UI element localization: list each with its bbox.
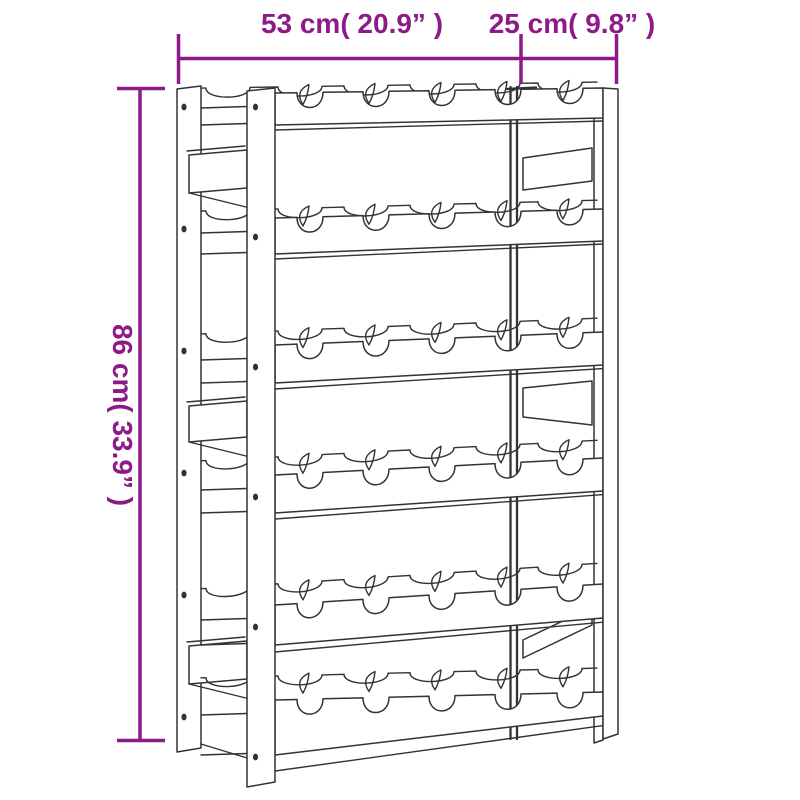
side-rail-line xyxy=(201,512,247,514)
shelf-front-rail-row-6 xyxy=(275,692,603,755)
front-right-post xyxy=(603,88,618,739)
bottle-cradle-rim xyxy=(300,206,309,226)
side-rail-line xyxy=(201,124,247,126)
back-right-post xyxy=(511,87,518,739)
bottle-cradle-rim xyxy=(432,83,441,103)
bottle-cradle-rim xyxy=(300,453,309,473)
bottle-cradle-rim xyxy=(560,317,569,337)
screw-dot xyxy=(253,364,258,371)
bottle-cradle-rim xyxy=(498,320,507,340)
bottle-cradle-rim xyxy=(300,328,309,348)
screw-dot xyxy=(181,104,186,111)
left-brace-bottom xyxy=(189,641,247,684)
bottle-cradle-rim xyxy=(560,563,569,583)
bottle-cradle-rim xyxy=(498,201,507,221)
bottle-cradle-rim xyxy=(300,580,309,600)
side-rail-line xyxy=(201,619,247,621)
side-rail-line xyxy=(201,489,247,491)
right-brace-middle xyxy=(523,381,592,425)
bottle-cradle-rim xyxy=(432,202,441,222)
bottle-cradle-rim xyxy=(498,81,507,101)
screw-dot xyxy=(253,104,258,111)
side-rail-line xyxy=(201,107,247,109)
side-rail-line xyxy=(201,253,247,255)
left-brace-middle xyxy=(189,401,247,442)
screw-dot xyxy=(181,714,186,721)
bottle-cradle-rim xyxy=(300,85,309,105)
side-rail-line xyxy=(201,232,247,234)
front-left-post xyxy=(247,88,275,787)
bottle-cradle-rim xyxy=(300,673,309,693)
left-brace-top xyxy=(189,150,247,193)
bottle-cradle-rim xyxy=(560,81,569,101)
side-rail-line xyxy=(201,754,247,756)
screw-dot xyxy=(253,494,258,501)
bottle-cradle-rim xyxy=(366,450,375,470)
shelf-front-rail-row-2 xyxy=(275,209,603,254)
bottle-cradle-rim xyxy=(366,325,375,345)
rack-back-layer xyxy=(177,86,603,752)
side-rail-line xyxy=(201,382,247,384)
product-dimension-diagram: 53 cm( 20.9” ) 25 cm( 9.8” ) 86 cm( 33.9… xyxy=(0,0,800,800)
bottle-cradle-rim xyxy=(498,443,507,463)
bottle-cradle-rim xyxy=(366,204,375,224)
bottle-cradle-rim xyxy=(432,670,441,690)
bottle-cradle-rim xyxy=(498,567,507,587)
screw-dot xyxy=(253,624,258,631)
bottle-cradle-rim xyxy=(366,84,375,104)
screw-dot xyxy=(253,234,258,241)
screw-dot xyxy=(253,754,258,761)
depth-dimension-label: 25 cm( 9.8” ) xyxy=(489,8,656,39)
bottle-cradle-rim xyxy=(498,668,507,688)
bottle-cradle-rim xyxy=(432,571,441,591)
bottle-cradle-rim xyxy=(432,322,441,342)
shelf-front-rail-row-3 xyxy=(275,332,603,383)
height-dimension-label: 86 cm( 33.9” ) xyxy=(107,324,138,506)
bottle-cradle-rim xyxy=(560,667,569,687)
wine-rack-diagram-svg: 53 cm( 20.9” ) 25 cm( 9.8” ) 86 cm( 33.9… xyxy=(0,0,800,800)
bottle-cradle-rim xyxy=(366,672,375,692)
width-dimension-label: 53 cm( 20.9” ) xyxy=(261,8,443,39)
bottle-cradle-rim xyxy=(560,440,569,460)
shelf-front-rail-row-4 xyxy=(275,458,603,513)
side-rail-line xyxy=(201,714,247,716)
front-right-post-side-face xyxy=(594,88,603,743)
screw-dot xyxy=(181,348,186,355)
bottom-side-edge xyxy=(201,744,247,758)
rack-front-layer xyxy=(181,88,618,787)
screw-dot xyxy=(181,470,186,477)
screw-dot xyxy=(181,226,186,233)
screw-dot xyxy=(181,592,186,599)
side-rail-line xyxy=(201,359,247,361)
right-brace-top xyxy=(523,148,592,190)
bottle-cradle-rim xyxy=(432,446,441,466)
bottle-cradle-rim xyxy=(560,199,569,219)
bottle-cradle-rim xyxy=(366,576,375,596)
